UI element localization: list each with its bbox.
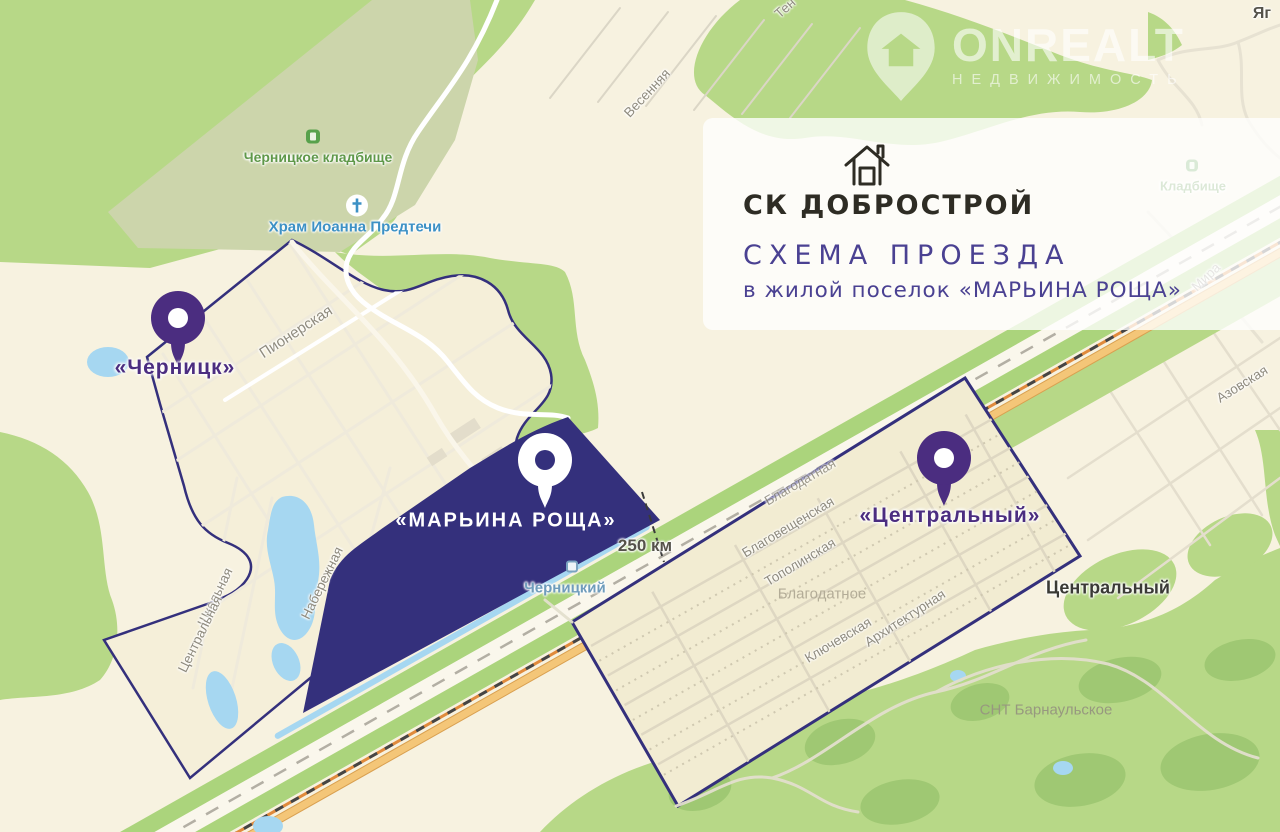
poi-edge-topright: Яг bbox=[1253, 5, 1271, 23]
poi-station: Черницкий bbox=[524, 580, 606, 597]
panel-sub-name: «МАРЬИНА РОЩА» bbox=[959, 278, 1182, 303]
marker-label-tsentralny[interactable]: «Центральный» bbox=[860, 504, 1041, 528]
onrealt-watermark: ONREALT НЕДВИЖИМОСТЬ bbox=[860, 6, 1186, 104]
panel-subheading: в жилой поселок«МАРЬИНА РОЩА» bbox=[743, 278, 1182, 303]
poi-church: Храм Иоанна Предтечи bbox=[269, 219, 442, 236]
marker-label-maryina-roshcha[interactable]: «МАРЬИНА РОЩА» bbox=[395, 510, 616, 533]
poi-snt: СНТ Барнаульское bbox=[980, 702, 1113, 719]
cemetery-icon bbox=[305, 129, 321, 150]
poi-km-mark: 250 км bbox=[618, 536, 672, 556]
watermark-brand: ONREALT bbox=[952, 22, 1186, 68]
poi-town: Центральный bbox=[1046, 578, 1170, 599]
map-scheme: Черницкое кладбище Храм Иоанна Предтечи … bbox=[0, 0, 1280, 832]
watermark-tagline: НЕДВИЖИМОСТЬ bbox=[952, 72, 1186, 88]
title-panel: СК ДОБРОСТРОЙ СХЕМА ПРОЕЗДА в жилой посе… bbox=[703, 118, 1280, 330]
pin-maryina-roshcha[interactable] bbox=[513, 432, 577, 520]
onrealt-logo-icon bbox=[860, 6, 942, 104]
poi-district: Благодатное bbox=[778, 586, 867, 603]
house-icon bbox=[841, 140, 893, 197]
marker-label-chernitsk[interactable]: «Черницк» bbox=[115, 356, 236, 380]
company-name: СК ДОБРОСТРОЙ bbox=[743, 190, 1034, 221]
panel-heading: СХЕМА ПРОЕЗДА bbox=[743, 240, 1071, 271]
poi-cemetery-left: Черницкое кладбище bbox=[244, 149, 393, 165]
panel-sub-prefix: в жилой поселок bbox=[743, 278, 951, 303]
station-icon bbox=[566, 560, 579, 578]
